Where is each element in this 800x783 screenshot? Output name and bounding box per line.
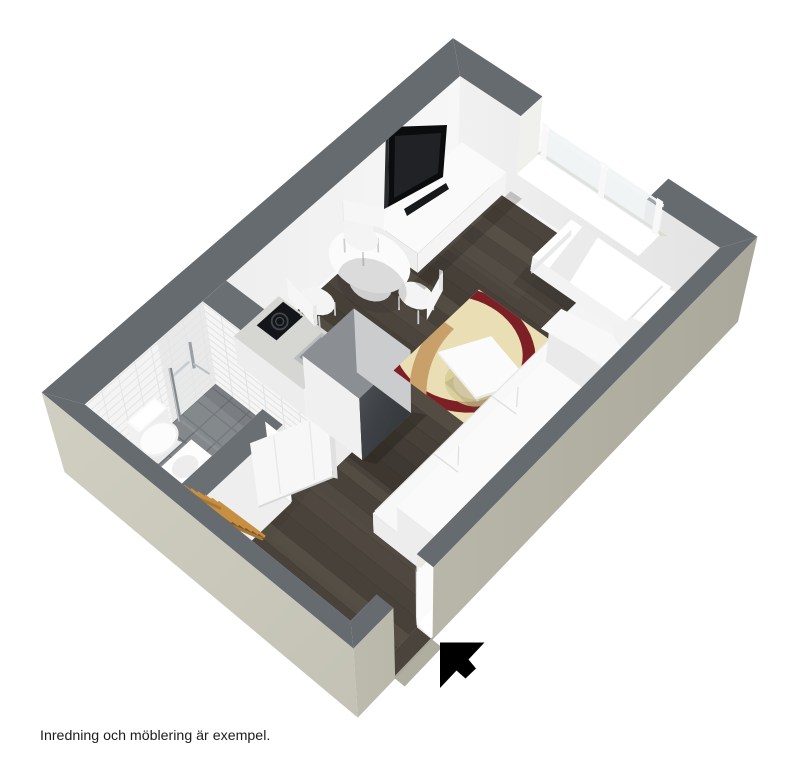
svg-text:Inredning och möblering är exe: Inredning och möblering är exempel. <box>40 728 270 744</box>
